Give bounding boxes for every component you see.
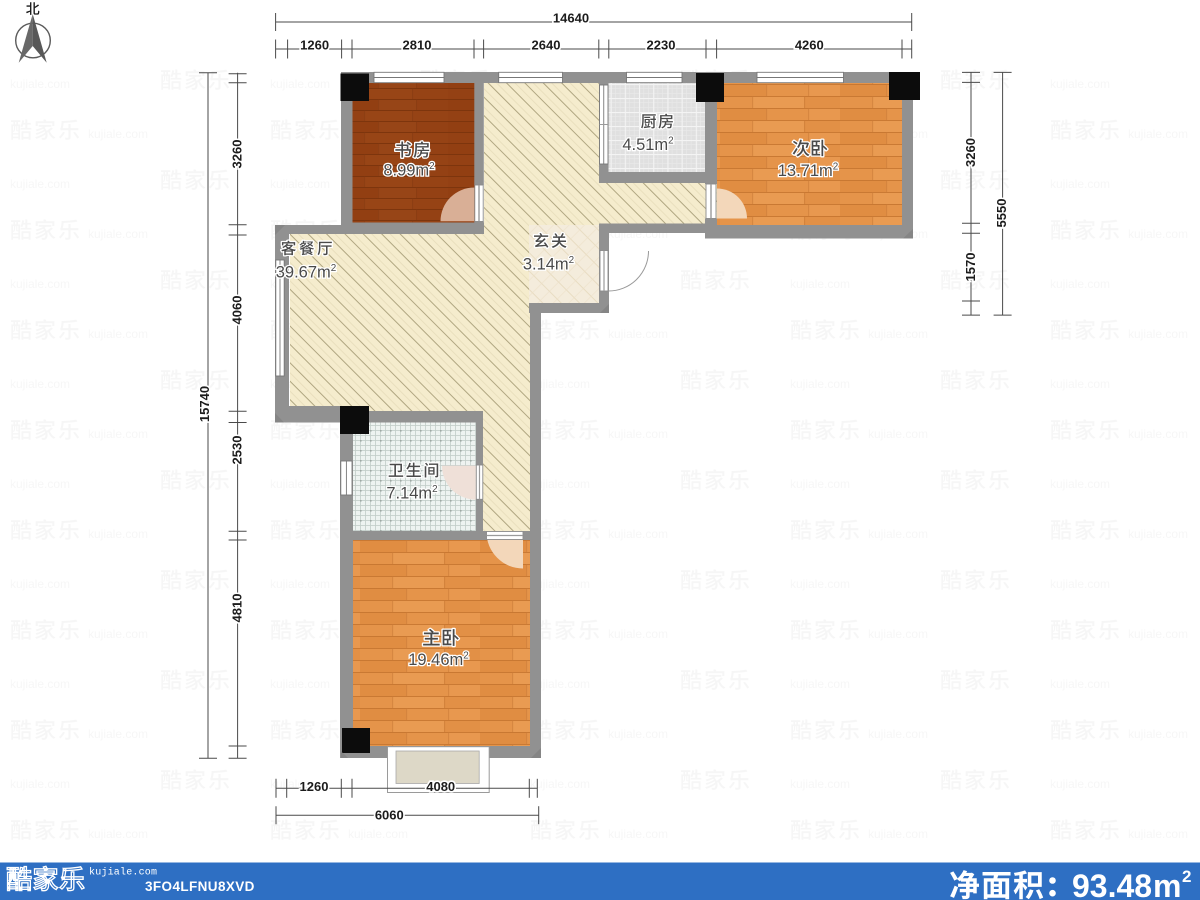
svg-text:4060: 4060 bbox=[230, 296, 245, 325]
svg-text:3.14m2: 3.14m2 bbox=[523, 255, 574, 273]
svg-text:15740: 15740 bbox=[197, 386, 212, 422]
svg-text:8.99m2: 8.99m2 bbox=[383, 161, 434, 179]
svg-text:kujiale.com: kujiale.com bbox=[89, 867, 157, 879]
svg-text:5550: 5550 bbox=[994, 199, 1009, 228]
svg-text:13.71m2: 13.71m2 bbox=[778, 162, 839, 180]
svg-text:19.46m2: 19.46m2 bbox=[408, 651, 469, 669]
svg-text:2: 2 bbox=[1182, 867, 1191, 886]
svg-text:2640: 2640 bbox=[532, 38, 561, 53]
svg-text:2230: 2230 bbox=[647, 38, 676, 53]
svg-text:4810: 4810 bbox=[230, 594, 245, 623]
svg-text:3260: 3260 bbox=[230, 140, 245, 169]
svg-text:3260: 3260 bbox=[963, 138, 978, 167]
svg-text:3FO4LFNU8XVD: 3FO4LFNU8XVD bbox=[145, 879, 255, 894]
svg-text:93.48: 93.48 bbox=[1072, 868, 1152, 900]
svg-text:4080: 4080 bbox=[426, 779, 455, 794]
svg-text:1260: 1260 bbox=[300, 779, 329, 794]
svg-text:1570: 1570 bbox=[963, 253, 978, 282]
svg-text:14640: 14640 bbox=[553, 10, 589, 25]
svg-text:7.14m2: 7.14m2 bbox=[386, 484, 437, 502]
svg-text:2810: 2810 bbox=[403, 38, 432, 53]
svg-text:2530: 2530 bbox=[230, 436, 245, 465]
svg-text:1260: 1260 bbox=[300, 38, 329, 53]
svg-text:39.67m2: 39.67m2 bbox=[276, 263, 337, 281]
svg-text:4260: 4260 bbox=[795, 38, 824, 53]
svg-text:6060: 6060 bbox=[375, 808, 404, 823]
svg-text:m: m bbox=[1153, 868, 1181, 900]
svg-text:4.51m2: 4.51m2 bbox=[622, 136, 673, 154]
